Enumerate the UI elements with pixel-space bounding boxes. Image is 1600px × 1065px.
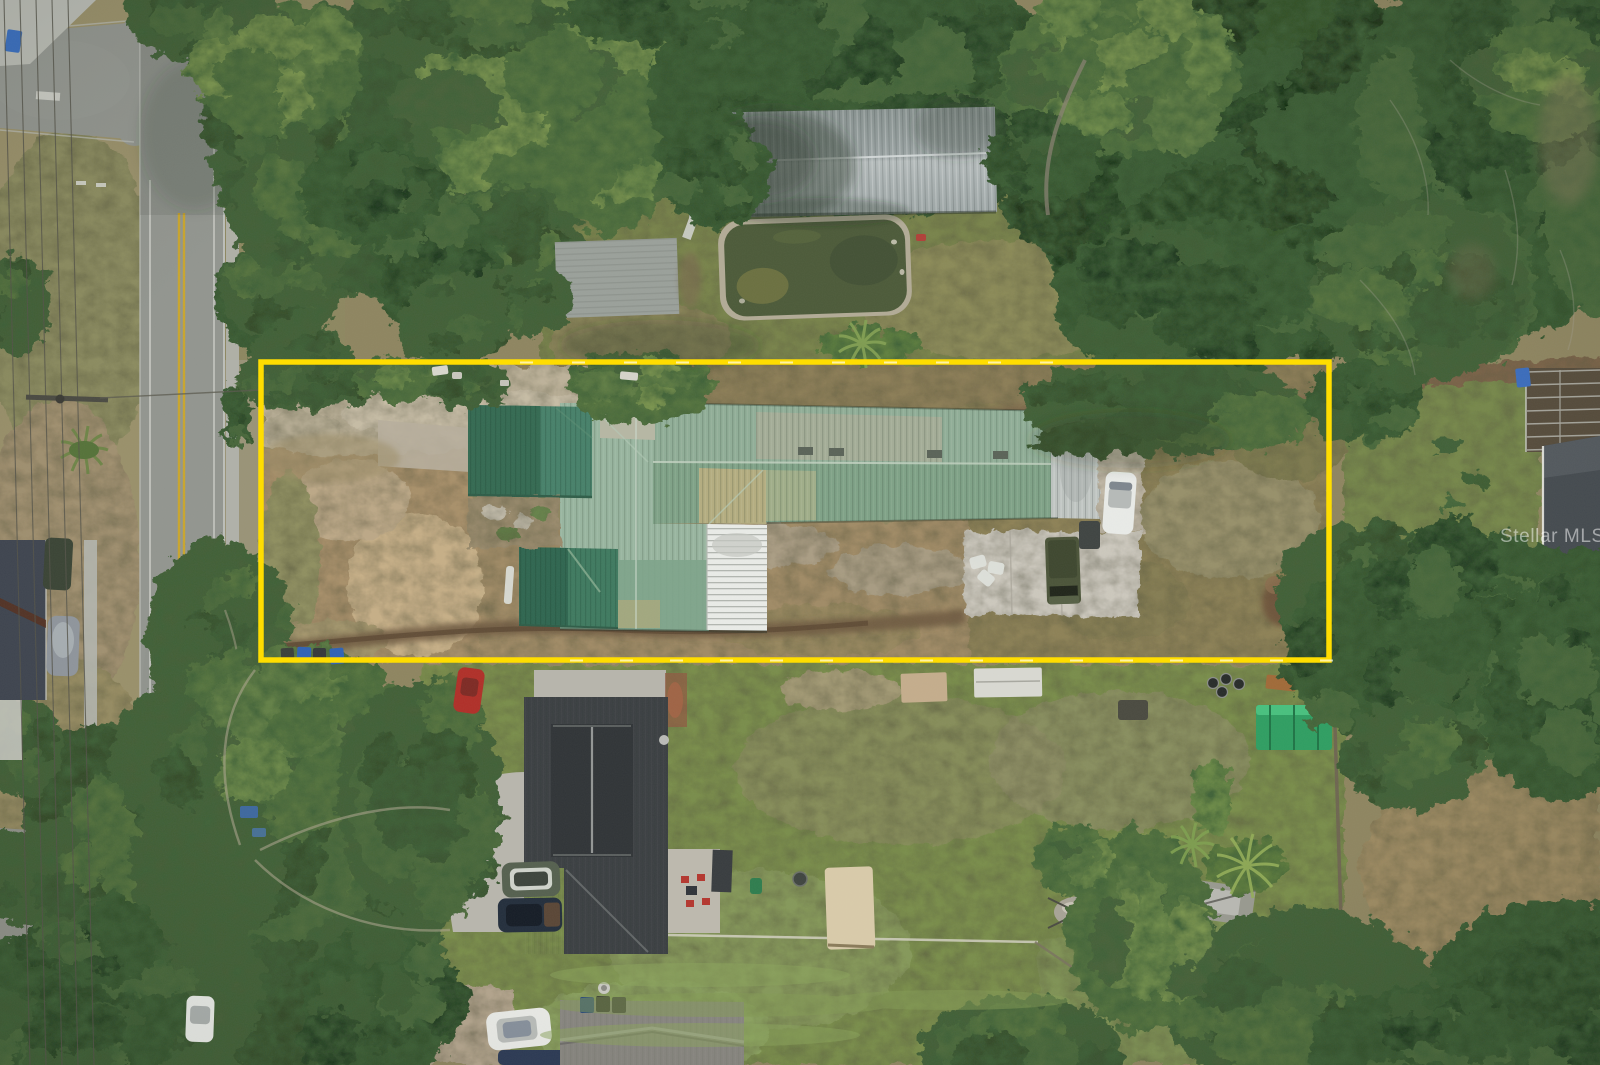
- svg-text:Stellar MLS: Stellar MLS: [1500, 526, 1600, 547]
